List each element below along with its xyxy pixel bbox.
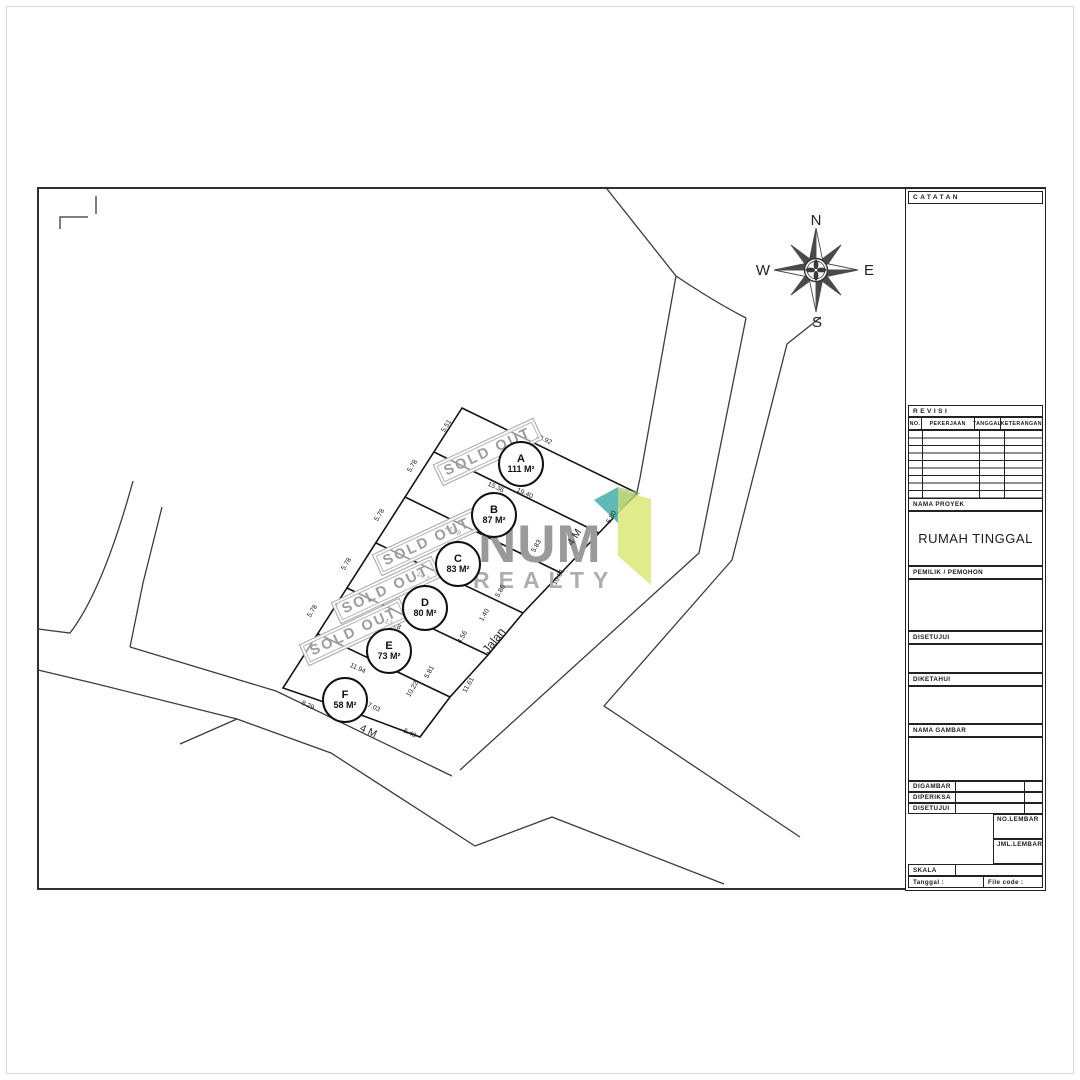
project-name: RUMAH TINGGAL [918,531,1033,546]
pemilik-label: PEMILIK / PEMOHON [913,569,983,576]
revision-empty-rows [908,430,1043,500]
diperiksa-label: DIPERIKSA [909,793,956,802]
tanggal-filecode-row: Tanggal : File code : [908,876,1043,888]
title-block: CATATAN REVISI NO. PEKERJAAN TANGGAL KET… [905,188,1046,891]
rev-col-no: NO. [909,418,922,429]
plot-area: 83 M² [446,565,469,574]
rev-col-keterangan: KETERANGAN [1001,418,1042,429]
revisi-label: REVISI [913,408,949,415]
dimension-label: 5.81 [423,665,436,680]
dimension-label: 11.94 [349,662,367,675]
title-block-revisi-header: REVISI [908,405,1043,417]
rev-col-tanggal: TANGGAL [975,418,1001,429]
file-code-label: File code : [984,877,1042,887]
dimension-label: 11.61 [462,676,476,694]
dimension-label: 10.81 [551,568,566,586]
road-label: 4 M [565,527,585,548]
dimension-label: 5.78 [373,508,386,523]
dimension-label: 10.22 [405,680,420,698]
jml-lembar-cell: JML.LEMBAR [993,839,1043,864]
nama-proyek-header: NAMA PROYEK [908,498,1043,511]
tanggal-label: Tanggal : [909,877,984,887]
revision-column-headers: NO. PEKERJAAN TANGGAL KETERANGAN [908,417,1043,430]
plot-area: 87 M² [482,516,505,525]
diketahui-cell [908,686,1043,724]
dimension-label: 5.83 [530,539,543,554]
project-name-cell: RUMAH TINGGAL [908,511,1043,566]
road-label: Jalan [480,625,509,656]
disetujui-cell [908,644,1043,673]
dimension-label: 7.03 [366,702,381,714]
rev-col-pekerjaan: PEKERJAAN [922,418,975,429]
no-lembar-label: NO.LEMBAR [997,816,1039,823]
diketahui-header: DIKETAHUI [908,673,1043,686]
dimension-label: 5.78 [406,459,419,474]
title-block-catatan-header: CATATAN [908,191,1043,204]
plot-area: 73 M² [377,652,400,661]
plot-area: 111 M² [507,465,534,474]
plot-marker-e: E73 M² [366,628,412,674]
diketahui-label: DIKETAHUI [913,676,950,683]
nama-gambar-header: NAMA GAMBAR [908,724,1043,737]
jml-lembar-label: JML.LEMBAR [997,841,1042,848]
road-label: 4 M [358,722,379,740]
dimension-label: 1.40 [478,608,491,623]
plot-marker-a: A111 M² [498,441,544,487]
dimension-label: 5.80 [605,510,618,525]
dimension-label: 5.51 [440,419,453,434]
dimension-label: 19.40 [515,487,534,501]
digambar-label: DIGAMBAR [909,782,956,791]
catatan-label: CATATAN [913,194,960,201]
plot-area: 58 M² [333,701,356,710]
dimension-label: 5.86 [494,584,507,599]
dimension-label: 5.78 [340,557,353,572]
plot-marker-f: F58 M² [322,677,368,723]
pemilik-cell [908,579,1043,631]
skala-label: SKALA [909,865,956,875]
nama-gambar-label: NAMA GAMBAR [913,727,966,734]
dimension-label: 5.78 [306,604,319,619]
plot-marker-c: C83 M² [435,541,481,587]
dimension-label: 4.56 [456,630,469,645]
nama-proyek-label: NAMA PROYEK [913,501,964,508]
drawing-sheet-page: N E S W NUM REALTY 5.515.785.785.785.781… [0,0,1080,1080]
disetujui-header: DISETUJUI [908,631,1043,644]
no-lembar-cell: NO.LEMBAR [993,814,1043,839]
nama-gambar-cell [908,737,1043,781]
disetujui2-label: DISETUJUI [909,804,956,813]
skala-row: SKALA [908,864,1043,876]
plot-area: 80 M² [413,609,436,618]
disetujui-label: DISETUJUI [913,634,950,641]
dimension-label: 8.29 [300,700,315,712]
dimension-label: 5.40 [402,728,417,740]
plot-marker-b: B87 M² [471,492,517,538]
diperiksa-row: DIPERIKSA [908,792,1043,803]
plot-marker-d: D80 M² [402,585,448,631]
disetujui2-row: DISETUJUI [908,803,1043,814]
digambar-row: DIGAMBAR [908,781,1043,792]
pemilik-header: PEMILIK / PEMOHON [908,566,1043,579]
